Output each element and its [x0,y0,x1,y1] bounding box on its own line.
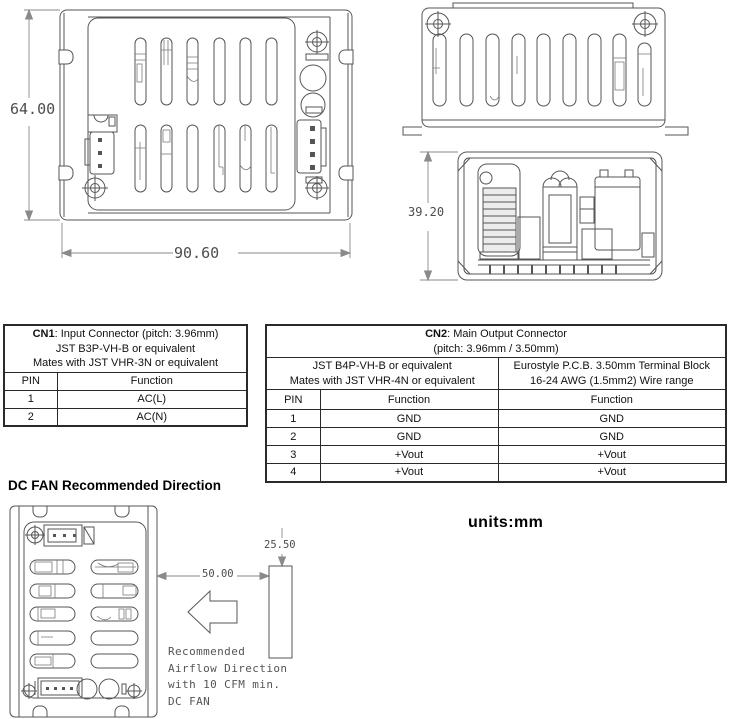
fan-flange-notches [33,506,129,717]
dim-fan-size-label: 25.50 [263,540,297,552]
cn1-header-row: CN1: Input Connector (pitch: 3.96mm) JST… [4,325,247,372]
table-row: 4 +Vout +Vout [266,464,726,482]
vent-detail-lines [135,40,275,180]
cn2-pitch: (pitch: 3.96mm / 3.50mm) [269,342,723,357]
fan-section-title: DC FAN Recommended Direction [8,478,221,493]
cn2-jst-line2: Mates with JST VHR-4N or equivalent [269,374,496,389]
table-row: 1 AC(L) [4,390,247,408]
dim-height-label: 64.00 [9,101,56,118]
cn2-table: CN2: Main Output Connector (pitch: 3.96m… [265,324,727,483]
front-view-svg [398,0,729,142]
cn2-title: : Main Output Connector [447,328,567,340]
cn2-title-cell: CN2: Main Output Connector (pitch: 3.96m… [266,325,726,358]
cn1-subtitle1: JST B3P-VH-B or equivalent [7,342,244,357]
dim-width-label: 90.60 [173,245,220,262]
cn1-col-function: Function [57,372,247,390]
front-vent-details [433,48,651,100]
cn2-euro-line2: 16-24 AWG (1.5mm2) Wire range [501,374,724,389]
airflow-arrow [188,591,237,633]
cn2-subheader-row: JST B4P-VH-B or equivalent Mates with JS… [266,358,726,390]
pin-cell: 2 [4,408,57,426]
function-cell: GND [498,410,726,428]
function-cell: GND [320,410,498,428]
top-view-svg [20,2,395,270]
cn1-title: : Input Connector (pitch: 3.96mm) [55,328,219,340]
function-cell: GND [498,428,726,446]
input-connector-cn1 [85,115,117,174]
top-view-drawing [20,2,395,270]
airflow-note-line: DC FAN [168,694,287,711]
cn2-col-function1: Function [320,390,498,410]
function-cell: AC(N) [57,408,247,426]
cn2-column-header-row: PIN Function Function [266,390,726,410]
function-cell: +Vout [320,464,498,482]
cn2-id: CN2 [425,328,447,340]
cn2-col-function2: Function [498,390,726,410]
cn1-table: CN1: Input Connector (pitch: 3.96mm) JST… [3,324,248,427]
fan-vent-slots [30,560,138,668]
output-connector-cn2 [297,120,326,183]
front-vent-slots [433,34,651,106]
pin-cell: 2 [266,428,320,446]
cn1-column-header-row: PIN Function [4,372,247,390]
dim-depth-label: 39.20 [407,206,445,219]
airflow-note-line: Recommended [168,644,287,661]
cn2-euro-cell: Eurostyle P.C.B. 3.50mm Terminal Block 1… [498,358,726,390]
front-screws [425,11,658,37]
cn1-col-pin: PIN [4,372,57,390]
airflow-note: Recommended Airflow Direction with 10 CF… [168,644,287,710]
function-cell: +Vout [320,446,498,464]
units-label: units:mm [468,514,543,532]
airflow-note-line: with 10 CFM min. [168,677,287,694]
fan-bottom-connector [21,678,142,699]
cn1-id: CN1 [33,328,55,340]
pin-cell: 3 [266,446,320,464]
screws-and-caps [82,30,329,201]
fan-top-connector [25,525,94,546]
cn2-euro-line1: Eurostyle P.C.B. 3.50mm Terminal Block [501,359,724,374]
fan-vent-details [35,560,136,668]
airflow-note-line: Airflow Direction [168,661,287,678]
internal-components [478,164,654,274]
dim-fan-distance-label: 50.00 [201,569,235,581]
pin-cell: 1 [266,410,320,428]
table-row: 2 AC(N) [4,408,247,426]
cn1-title-cell: CN1: Input Connector (pitch: 3.96mm) JST… [4,325,247,372]
function-cell: AC(L) [57,390,247,408]
pin-cell: 1 [4,390,57,408]
table-row: 1 GND GND [266,410,726,428]
front-view-drawing [398,0,729,142]
vent-slots [135,38,277,192]
cn2-col-pin: PIN [266,390,320,410]
pin-cell: 4 [266,464,320,482]
cn2-jst-cell: JST B4P-VH-B or equivalent Mates with JS… [266,358,498,390]
function-cell: GND [320,428,498,446]
cn2-header-row: CN2: Main Output Connector (pitch: 3.96m… [266,325,726,358]
table-row: 2 GND GND [266,428,726,446]
cn2-jst-line1: JST B4P-VH-B or equivalent [269,359,496,374]
table-row: 3 +Vout +Vout [266,446,726,464]
datasheet-page: { "page": { "units_label": "units:mm" },… [0,0,729,719]
cn1-subtitle2: Mates with JST VHR-3N or equivalent [7,356,244,371]
function-cell: +Vout [498,464,726,482]
function-cell: +Vout [498,446,726,464]
